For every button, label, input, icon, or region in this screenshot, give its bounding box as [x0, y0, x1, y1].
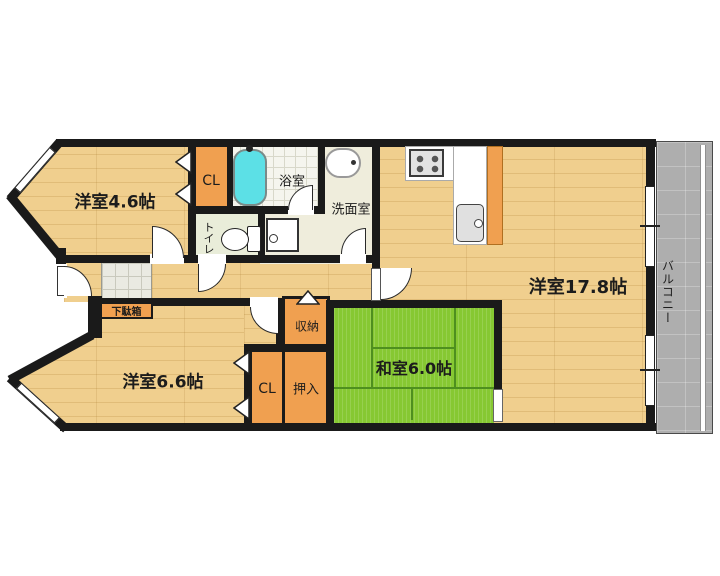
balcony-rail [700, 145, 706, 431]
folding-door-icon [175, 182, 192, 206]
room-label-storage: 収納 [295, 318, 319, 335]
room-label-toilet: トイレ [200, 222, 216, 255]
door-opening [340, 254, 366, 264]
room-label-western-17-8: 洋室17.8帖 [529, 273, 627, 299]
tatami-line [334, 387, 494, 389]
tatami-line [371, 347, 456, 349]
window-tick [640, 369, 660, 371]
room-label-bathroom: 浴室 [279, 171, 305, 190]
room-label-oshiire: 押入 [293, 379, 319, 398]
wall [244, 344, 334, 352]
room-label-closet-upper: CL [202, 173, 220, 189]
tatami-line [411, 389, 413, 420]
folding-door-icon [233, 396, 250, 420]
room-label-balcony: バルコニー [660, 260, 677, 325]
room-label-western-4-6: 洋室4.6帖 [74, 188, 155, 213]
floor-plan: 下駄箱 洋室4.6帖 CL 浴室 洗面室 トイレ 洋室17.8帖 バルコニー 洋… [0, 0, 720, 576]
wall [318, 143, 325, 214]
drain-icon [269, 234, 278, 243]
window-tick [640, 225, 660, 227]
bathtub [233, 149, 267, 206]
wall [326, 300, 334, 426]
door-opening [250, 297, 278, 307]
stove [409, 149, 444, 177]
toilet-tank [247, 226, 261, 252]
kitchen-faucet-icon [474, 219, 483, 228]
wall [372, 143, 380, 270]
entrance-tile [101, 262, 152, 303]
door-opening [198, 254, 226, 264]
kitchen-counter-edge [487, 146, 503, 245]
wall [494, 300, 502, 390]
shoe-cabinet-box: 下駄箱 [100, 302, 153, 319]
sliding-door-opening [493, 389, 503, 422]
wall [60, 423, 656, 431]
room-label-western-6-6: 洋室6.6帖 [122, 368, 203, 393]
folding-door-icon [233, 351, 250, 375]
room-label-japanese-6-0: 和室6.0帖 [376, 355, 452, 379]
shoe-cabinet-label: 下駄箱 [112, 303, 142, 318]
washbasin-faucet-icon [351, 160, 356, 165]
folding-door-icon [175, 150, 192, 174]
wall [56, 139, 656, 147]
room-label-closet-lower: CL [258, 381, 276, 397]
toilet-bowl [221, 228, 249, 251]
room-label-washroom: 洗面室 [331, 199, 370, 218]
door-leaf [371, 268, 381, 301]
wall [326, 300, 502, 308]
folding-door-icon [296, 290, 320, 305]
bath-faucet-icon [246, 145, 253, 152]
